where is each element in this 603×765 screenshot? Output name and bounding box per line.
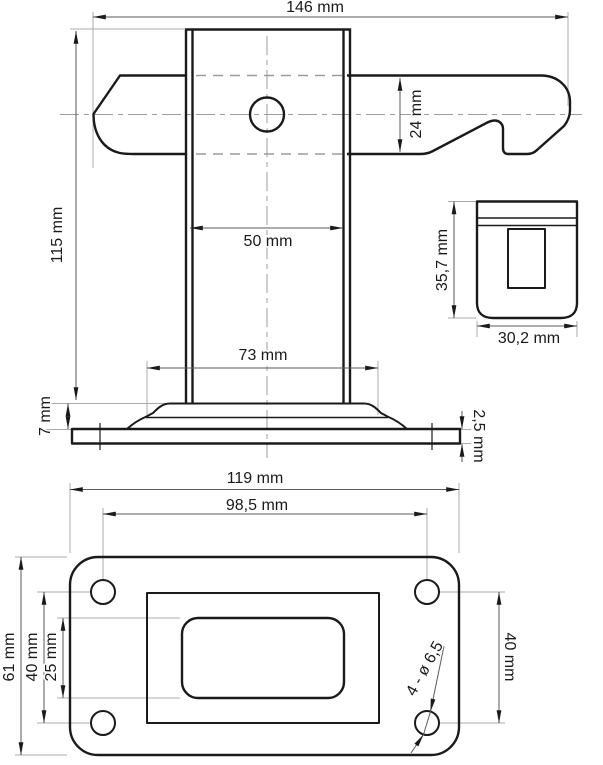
hole-leader-lower [411,735,424,754]
dim-label-hole-spacing-height-right: 40 mm [501,633,518,682]
dim-label-slot-height: 25 mm [43,633,60,682]
dim-label-column-width: 50 mm [244,233,293,250]
dim-label-overall-width: 146 mm [286,0,344,16]
flange-slot [182,618,344,698]
side-slot [508,229,545,288]
dimension-lines [21,17,577,755]
flange-hole-bottom-left [91,711,115,735]
dim-label-plate-thickness: 2,5 mm [470,409,487,462]
dim-label-side-width: 30,2 mm [498,330,560,347]
dim-label-side-height: 35,7 mm [434,229,451,291]
dim-label-arm-height: 24 mm [408,90,425,139]
technical-drawing: 146 mm 115 mm 24 mm 50 mm 73 mm 7 mm 2,5… [0,0,603,765]
dim-label-hole-spacing-width: 98,5 mm [226,497,288,514]
dim-label-hole-spacing-height-left: 40 mm [24,633,41,682]
base-plate-outline [72,429,460,444]
flange-plate-outline [70,557,459,755]
dim-label-hole-callout: 4 - ø 6,5 [403,639,447,699]
extension-lines [15,12,577,755]
side-outline [477,202,577,319]
side-band-lines [477,218,577,226]
drawing-canvas: 146 mm 115 mm 24 mm 50 mm 73 mm 7 mm 2,5… [0,0,603,765]
flange-hole-top-left [91,580,115,604]
dim-label-base-width: 73 mm [239,347,288,364]
flange-hole-top-right [415,580,439,604]
side-view [477,202,577,319]
dim-label-overall-height: 115 mm [49,207,66,264]
dim-label-flange-width: 119 mm [227,470,284,487]
centerlines [60,36,582,458]
hole-leader-through [424,712,431,735]
dim-label-flange-height: 61 mm [1,633,18,682]
bottom-view [70,557,459,755]
dim-label-base-height: 7 mm [37,396,54,436]
